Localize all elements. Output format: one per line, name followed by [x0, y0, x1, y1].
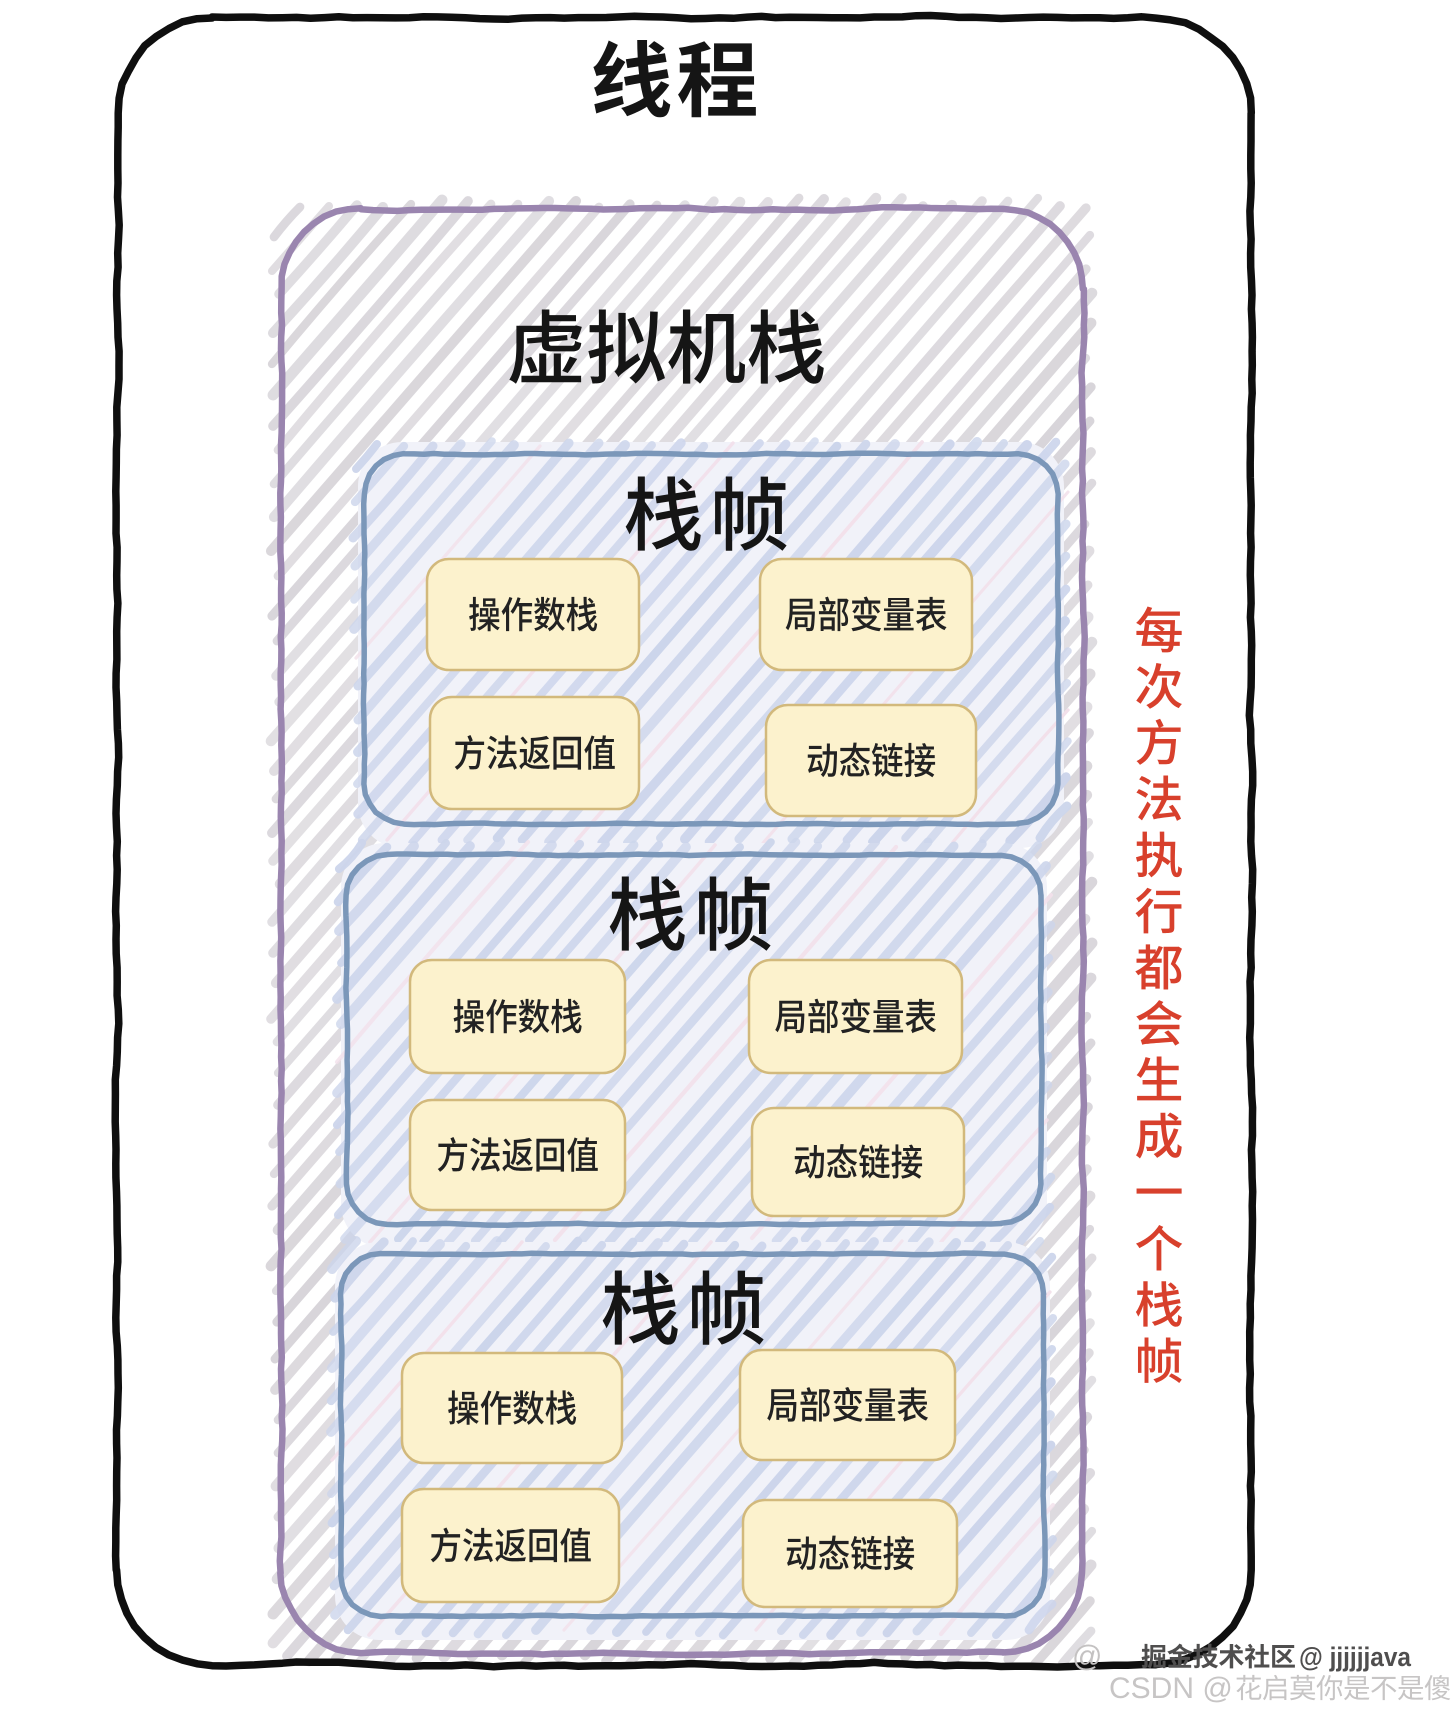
svg-text:@: @	[1072, 1640, 1102, 1673]
svg-text:@ jjjjjjava: @ jjjjjjava	[1299, 1642, 1412, 1672]
svg-text:CSDN @: CSDN @	[1109, 1672, 1233, 1705]
